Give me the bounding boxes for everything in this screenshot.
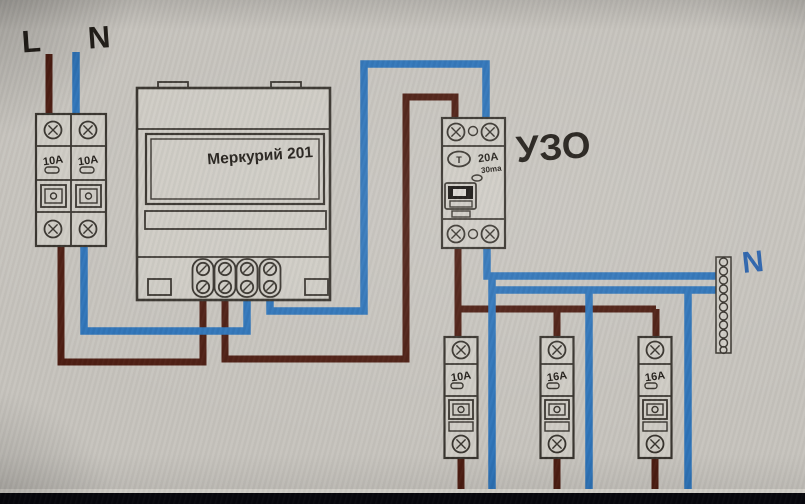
screen-edge-highlight <box>0 489 805 493</box>
screw-terminal-icon <box>80 122 97 139</box>
wiring-diagram-photo: L N 10A 10A Меркурий 201 <box>0 0 805 504</box>
wiring-diagram: L N 10A 10A Меркурий 201 <box>0 0 805 504</box>
branch-breaker-3: 16A <box>639 337 672 458</box>
screw-terminal-icon <box>647 342 664 359</box>
screw-terminal-icon <box>448 226 465 243</box>
screw-terminal-icon <box>647 436 664 453</box>
branch-breaker-1: 10A <box>445 337 478 458</box>
screw-terminal-icon <box>80 221 97 238</box>
neutral-bus-label: N <box>740 245 765 280</box>
rcd-rating: 20A <box>477 151 499 165</box>
letterbox-bar <box>0 493 805 504</box>
screw-terminal-icon <box>453 342 470 359</box>
screw-terminal-icon <box>448 124 465 141</box>
main-breaker: 10A 10A <box>36 114 106 246</box>
wire-rcd-to-bus-neutral <box>487 246 719 276</box>
screw-terminal-icon <box>482 226 499 243</box>
test-button-label: T <box>456 155 462 165</box>
rcd-label: УЗО <box>515 124 592 170</box>
screw-terminal-icon <box>549 436 566 453</box>
branch-breaker-2: 16A <box>541 337 574 458</box>
electric-meter: Меркурий 201 <box>137 82 330 300</box>
rcd-device: T 20A 30ma <box>442 118 505 248</box>
screw-terminal-icon <box>549 342 566 359</box>
neutral-input-label: N <box>87 19 112 55</box>
screw-terminal-icon <box>482 124 499 141</box>
phase-input-label: L <box>21 23 42 59</box>
screw-terminal-icon <box>453 436 470 453</box>
screw-terminal-icon <box>45 221 62 238</box>
screw-terminal-icon <box>45 122 62 139</box>
neutral-bus <box>716 257 731 353</box>
